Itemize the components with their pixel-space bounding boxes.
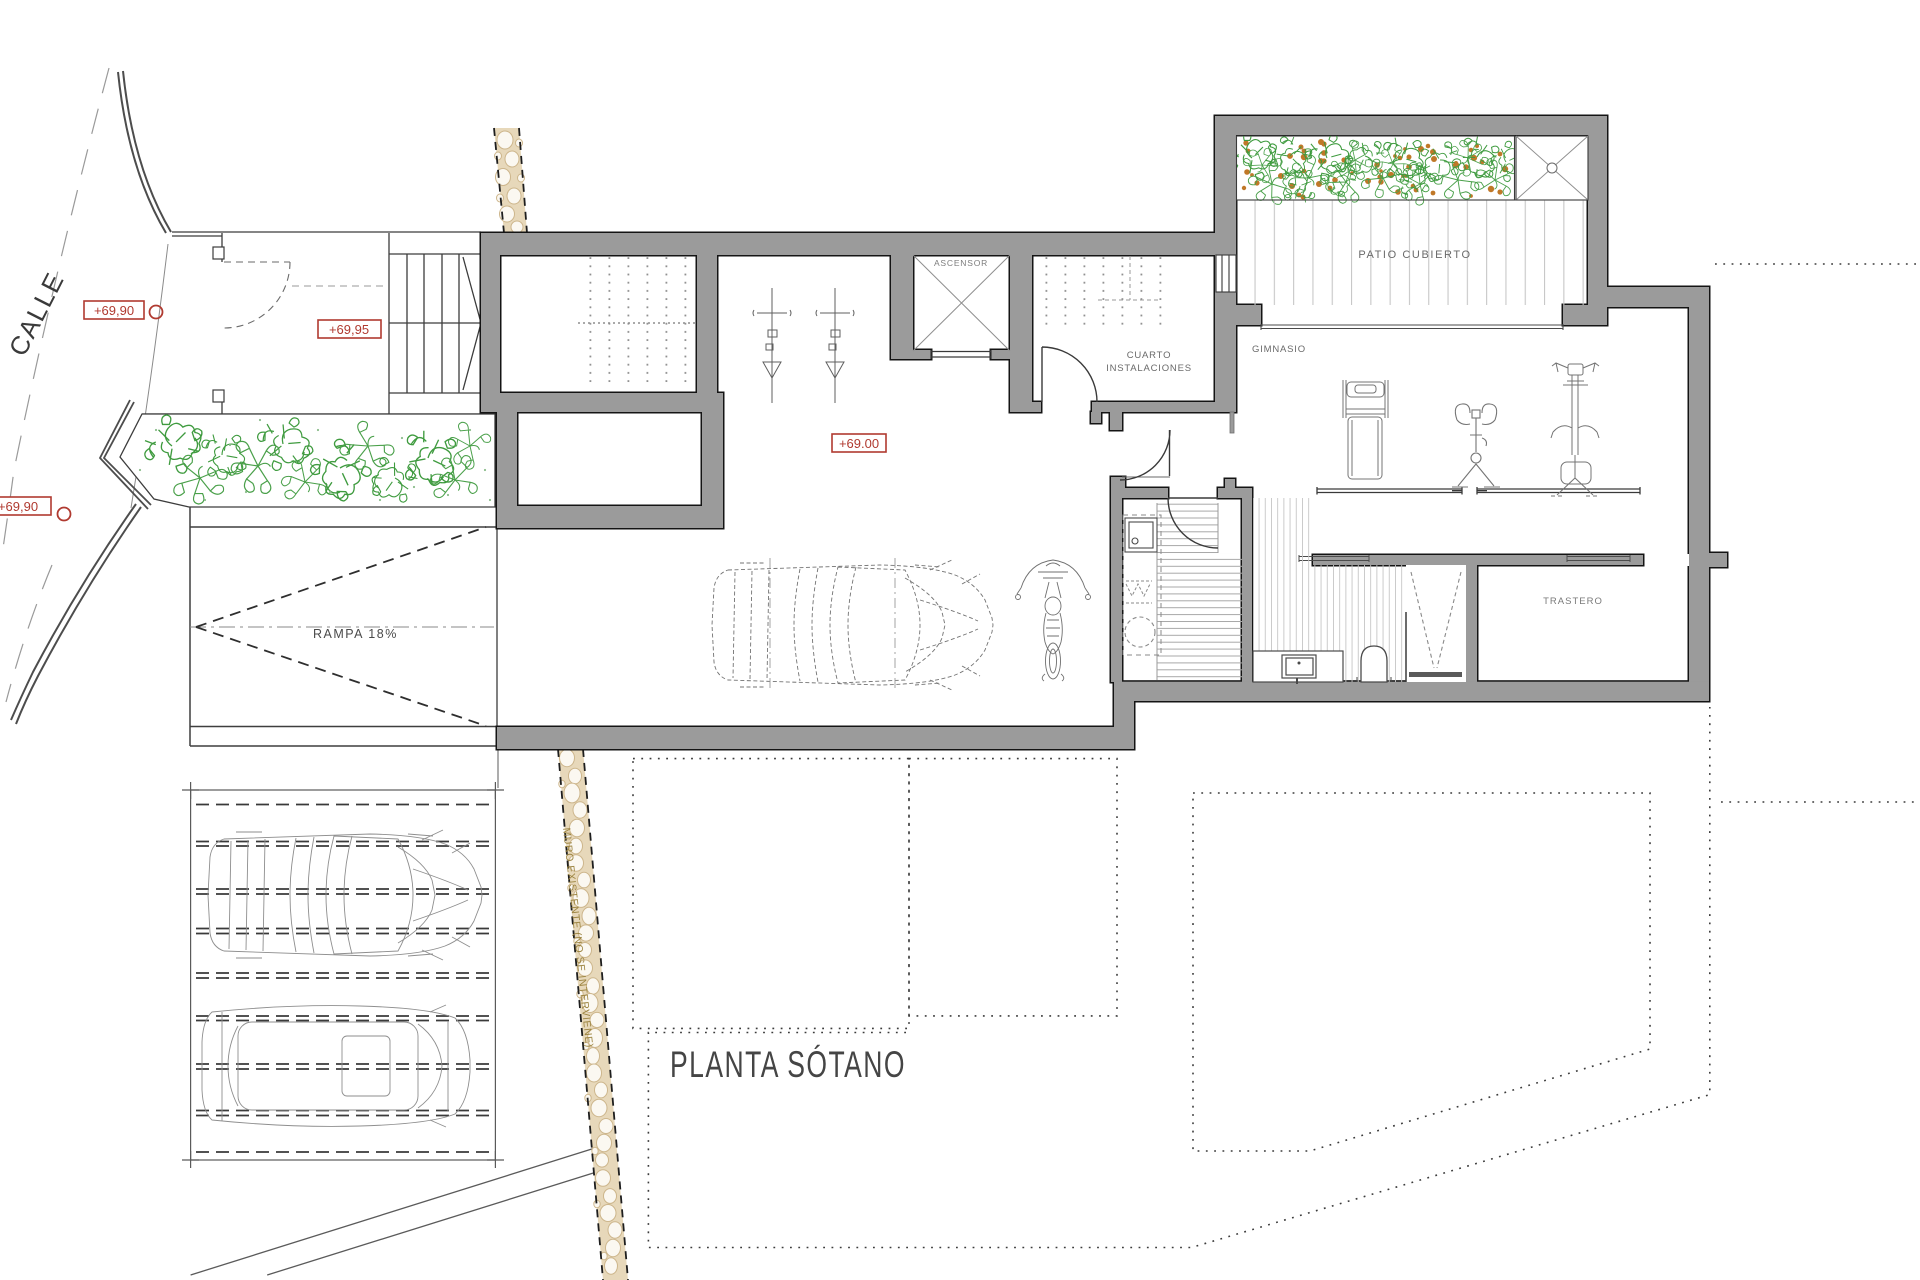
svg-text:INSTALACIONES: INSTALACIONES: [1106, 363, 1192, 374]
svg-text:RAMPA 18%: RAMPA 18%: [313, 627, 398, 641]
svg-text:+69,95: +69,95: [329, 322, 369, 337]
svg-text:+69,90: +69,90: [0, 499, 38, 514]
svg-text:CUARTO: CUARTO: [1127, 350, 1172, 361]
svg-text:+69,90: +69,90: [94, 303, 134, 318]
svg-text:ASCENSOR: ASCENSOR: [934, 258, 988, 268]
svg-text:TRASTERO: TRASTERO: [1543, 596, 1603, 607]
svg-text:+69.00: +69.00: [839, 436, 879, 451]
svg-text:PLANTA SÓTANO: PLANTA SÓTANO: [670, 1044, 906, 1085]
svg-text:GIMNASIO: GIMNASIO: [1252, 344, 1306, 355]
svg-text:PATIO CUBIERTO: PATIO CUBIERTO: [1358, 249, 1471, 261]
